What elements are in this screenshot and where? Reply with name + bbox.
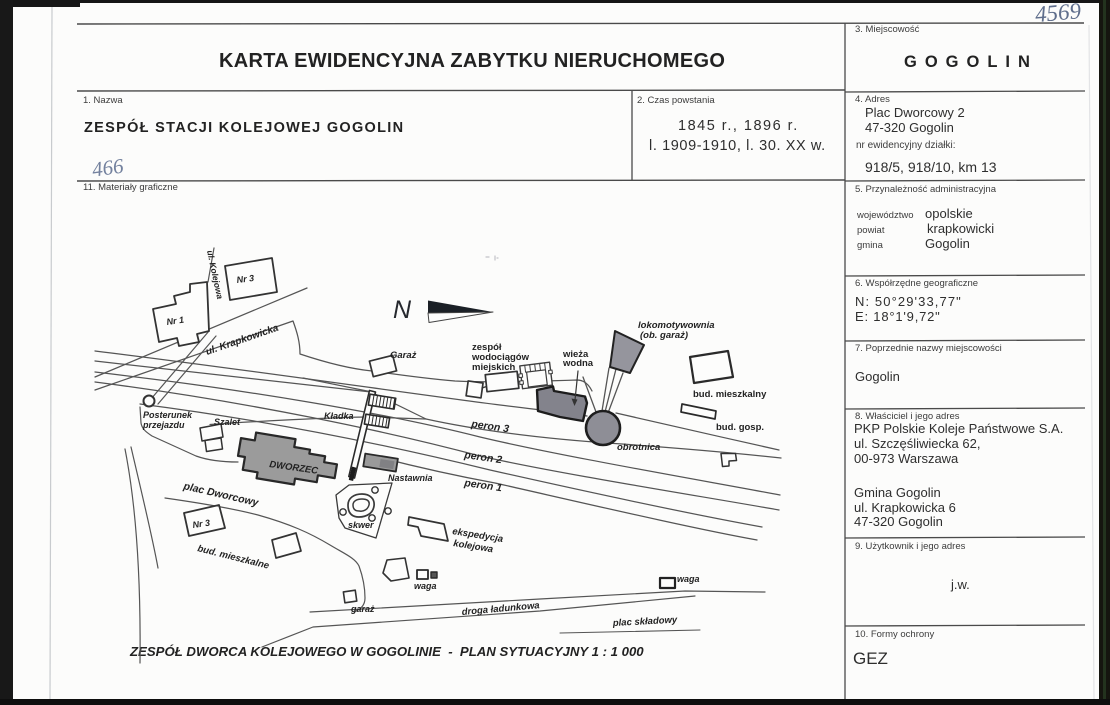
svg-text:N: N [393, 296, 412, 324]
svg-text:Gmina Gogolin: Gmina Gogolin [854, 485, 941, 500]
svg-text:Gogolin: Gogolin [855, 369, 900, 384]
svg-text:5. Przynależność administracyj: 5. Przynależność administracyjna [855, 184, 997, 195]
svg-text:918/5, 918/10, km 13: 918/5, 918/10, km 13 [865, 159, 997, 175]
svg-text:ul. Szczęśliwiecka 62,: ul. Szczęśliwiecka 62, [854, 436, 980, 451]
svg-text:N: 50°29'33,77": N: 50°29'33,77" [855, 294, 962, 309]
svg-text:00-973 Warszawa: 00-973 Warszawa [854, 451, 959, 466]
svg-text:1. Nazwa: 1. Nazwa [83, 95, 123, 106]
svg-text:1845 r., 1896 r.: 1845 r., 1896 r. [678, 118, 799, 134]
svg-text:10. Formy ochrony: 10. Formy ochrony [855, 629, 934, 640]
svg-text:Nastawnia: Nastawnia [388, 473, 433, 483]
svg-text:j.w.: j.w. [950, 577, 970, 592]
svg-text:47-320 Gogolin: 47-320 Gogolin [865, 120, 954, 135]
svg-text:466: 466 [90, 153, 125, 181]
svg-text:Gogolin: Gogolin [925, 236, 970, 251]
svg-text:l. 1909-1910, l. 30. XX w.: l. 1909-1910, l. 30. XX w. [649, 138, 826, 154]
svg-text:11. Materiały graficzne: 11. Materiały graficzne [83, 182, 178, 193]
svg-text:E: 18°1'9,72": E: 18°1'9,72" [855, 309, 941, 324]
svg-text:Nr 3: Nr 3 [236, 273, 255, 285]
svg-text:Posterunek: Posterunek [143, 410, 193, 420]
svg-text:GEZ: GEZ [853, 649, 888, 668]
svg-text:waga: waga [677, 574, 700, 584]
svg-text:ul. Krapkowicka 6: ul. Krapkowicka 6 [854, 500, 956, 515]
svg-text:powiat: powiat [857, 225, 885, 236]
svg-text:miejskich: miejskich [472, 362, 515, 373]
svg-text:Szalet: Szalet [214, 417, 241, 427]
svg-text:Plac Dworcowy 2: Plac Dworcowy 2 [865, 105, 965, 120]
svg-text:bud. mieszkalny: bud. mieszkalny [693, 389, 767, 400]
svg-text:nr ewidencyjny działki:: nr ewidencyjny działki: [856, 140, 956, 151]
svg-text:9. Użytkownik i jego adres: 9. Użytkownik i jego adres [855, 541, 966, 552]
svg-text:obrotnica: obrotnica [617, 442, 660, 453]
svg-text:4. Adres: 4. Adres [855, 94, 890, 105]
svg-text:PKP Polskie Koleje Państwowe S: PKP Polskie Koleje Państwowe S.A. [854, 421, 1063, 436]
svg-text:skwer: skwer [348, 520, 374, 530]
svg-text:waga: waga [414, 581, 437, 591]
svg-text:7. Poprzednie nazwy miejscowoś: 7. Poprzednie nazwy miejscowości [855, 343, 1002, 354]
svg-text:przejazdu: przejazdu [142, 420, 185, 430]
svg-text:47-320 Gogolin: 47-320 Gogolin [854, 514, 943, 529]
svg-text:Kładka: Kładka [324, 411, 354, 421]
svg-text:krapkowicki: krapkowicki [927, 221, 994, 236]
svg-text:KARTA EWIDENCYJNA ZABYTKU NIER: KARTA EWIDENCYJNA ZABYTKU NIERUCHOMEGO [219, 50, 725, 72]
svg-text:województwo: województwo [856, 210, 914, 221]
svg-text:3. Miejscowość: 3. Miejscowość [855, 24, 920, 35]
svg-text:ZESPÓŁ STACJI KOLEJOWEJ GOGOLI: ZESPÓŁ STACJI KOLEJOWEJ GOGOLIN [84, 118, 404, 136]
svg-text:bud. gosp.: bud. gosp. [716, 422, 764, 433]
svg-text:wodna: wodna [562, 358, 594, 369]
svg-text:garaż: garaż [350, 604, 375, 614]
svg-text:GOGOLIN: GOGOLIN [904, 53, 1038, 71]
svg-text:(ob. garaż): (ob. garaż) [640, 330, 688, 341]
svg-text:4569: 4569 [1034, 0, 1083, 27]
svg-text:6. Współrzędne geograficzne: 6. Współrzędne geograficzne [855, 278, 978, 289]
svg-text:gmina: gmina [857, 240, 884, 251]
svg-text:ZESPÓŁ DWORCA KOLEJOWEGO W GOG: ZESPÓŁ DWORCA KOLEJOWEGO W GOGOLINIE - P… [129, 644, 644, 659]
svg-text:Garaż: Garaż [390, 350, 417, 361]
svg-text:2. Czas powstania: 2. Czas powstania [637, 95, 715, 106]
svg-text:opolskie: opolskie [925, 206, 973, 221]
